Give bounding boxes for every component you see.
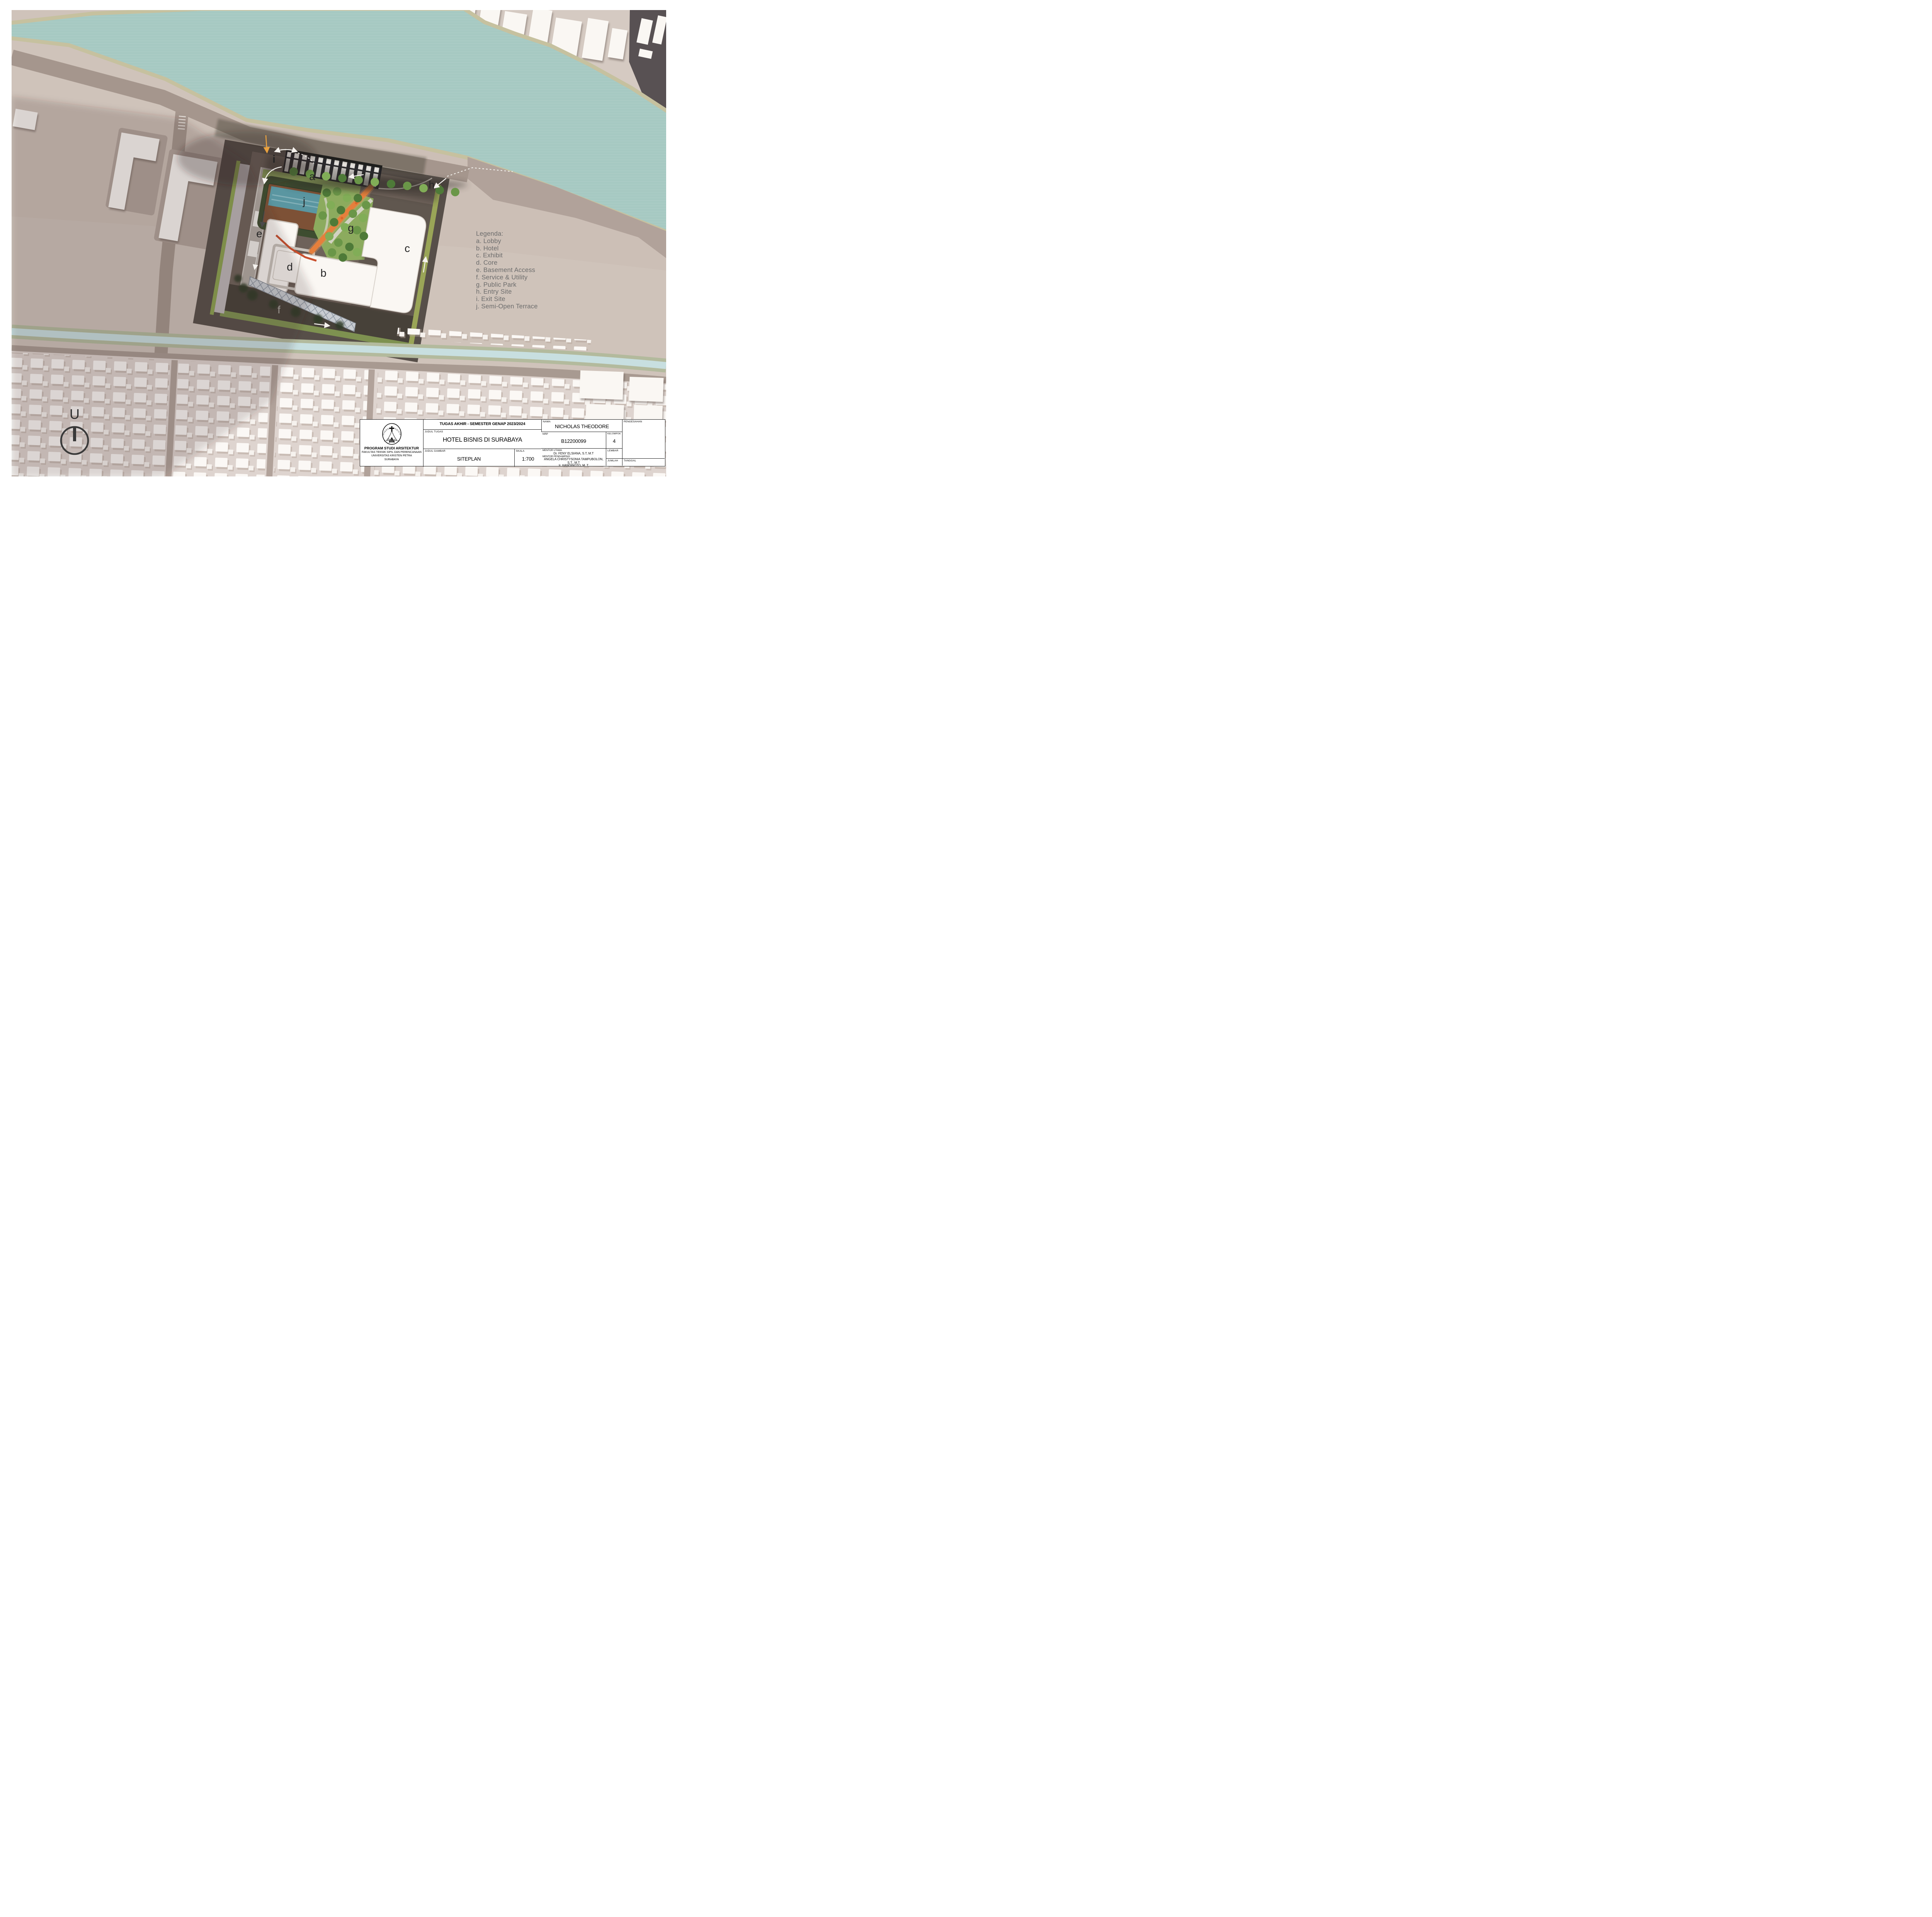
titleblock-judul-gambar-cell: JUDUL GAMBAR SITEPLAN <box>423 449 514 467</box>
judul-gambar-label: JUDUL GAMBAR <box>425 450 446 452</box>
judul-gambar-value: SITEPLAN <box>423 456 514 462</box>
titleblock-nrp-cell: NRP B12200099 <box>541 432 606 449</box>
judul-tugas-label: JUDUL TUGAS <box>425 430 443 433</box>
institution-program: PROGRAM STUDI ARSITEKTUR <box>360 446 423 451</box>
plan-label-e: e <box>256 228 262 239</box>
plan-label-b: b <box>320 268 327 279</box>
jumlah-label: JUMLAH <box>607 459 618 462</box>
legend-item: a. Lobby <box>476 238 538 245</box>
judul-tugas-value: HOTEL BISNIS DI SURABAYA <box>423 437 541 444</box>
nama-label: NAMA <box>543 420 551 423</box>
mentor-pendamping-2: Ir. HANDINOTO, M. T <box>541 464 606 467</box>
legend-item: c. Exhibit <box>476 252 538 259</box>
plan-label-a: a <box>309 171 315 182</box>
legend: Legenda: a. Lobby b. Hotel c. Exhibit d.… <box>476 230 538 310</box>
titleblock-tanggal-cell: TANGGAL <box>622 459 665 466</box>
siteplan-map: .bld{fill:#faf7f3;} .shadowed{filter:dro… <box>0 0 678 479</box>
plan-label-g: g <box>348 223 354 233</box>
titleblock-nama-cell: NAMA NICHOLAS THEODORE <box>541 420 622 432</box>
plan-label-f: f <box>277 304 281 315</box>
skala-value: 1:700 <box>515 456 541 462</box>
legend-item: f. Service & Utility <box>476 274 538 281</box>
legend-item: g. Public Park <box>476 281 538 289</box>
nrp-label: NRP <box>543 433 548 435</box>
institution-university: UNIVERSITAS KRISTEN PETRA <box>360 454 423 458</box>
plan-label-c: c <box>405 243 410 254</box>
siteplan-sheet: .bld{fill:#faf7f3;} .shadowed{filter:dro… <box>0 0 678 479</box>
title-block: UNIVERSITAS KRISTEN PETRA PROGRAM STUDI … <box>360 419 665 466</box>
pengesahan-label: PENGESAHAN <box>624 420 642 423</box>
titleblock-mentor-cell: MENTOR UTAMA Dr. FENY ELSIANA, S.T, M.T … <box>541 449 606 466</box>
titleblock-jumlah-cell: JUMLAH <box>606 459 622 466</box>
titleblock-institution: UNIVERSITAS KRISTEN PETRA PROGRAM STUDI … <box>360 420 423 466</box>
institution-city: SURABAYA <box>360 458 423 461</box>
legend-item: b. Hotel <box>476 245 538 252</box>
plan-label-d: d <box>287 262 293 272</box>
nrp-value: B12200099 <box>541 438 606 444</box>
petra-logo: UNIVERSITAS KRISTEN PETRA <box>381 422 402 446</box>
plan-label-i: i <box>272 154 276 165</box>
legend-title: Legenda: <box>476 230 538 238</box>
legend-item: e. Basement Access <box>476 267 538 274</box>
titleblock-header: TUGAS AKHIR - SEMESTER GENAP 2023/2024 <box>423 422 541 426</box>
plan-label-j: j <box>303 196 305 207</box>
kelompok-label: KELOMPOK <box>607 433 621 435</box>
plan-label-h: h <box>429 180 435 191</box>
legend-item: d. Core <box>476 259 538 267</box>
institution-faculty: FAKULTAS TEKNIK SIPIL DAN PERENCANAAN <box>360 451 423 454</box>
north-label: U <box>70 406 80 422</box>
legend-item: h. Entry Site <box>476 288 538 296</box>
titleblock-skala-cell: SKALA 1:700 <box>514 449 541 467</box>
titleblock-pengesahan-cell: PENGESAHAN <box>622 420 665 459</box>
mentor-utama-label: MENTOR UTAMA <box>543 449 562 452</box>
nama-value: NICHOLAS THEODORE <box>542 424 622 429</box>
titleblock-judul-tugas-cell: JUDUL TUGAS HOTEL BISNIS DI SURABAYA <box>423 430 541 449</box>
lembar-label: LEMBAR <box>607 449 618 452</box>
tanggal-label: TANGGAL <box>624 459 636 462</box>
legend-item: i. Exit Site <box>476 296 538 303</box>
kelompok-value: 4 <box>606 438 622 444</box>
skala-label: SKALA <box>516 450 524 452</box>
titleblock-lembar-cell: LEMBAR <box>606 449 622 459</box>
titleblock-kelompok-cell: KELOMPOK 4 <box>606 432 622 449</box>
titleblock-header-cell: TUGAS AKHIR - SEMESTER GENAP 2023/2024 <box>423 420 541 430</box>
legend-item: j. Semi-Open Terrace <box>476 303 538 310</box>
